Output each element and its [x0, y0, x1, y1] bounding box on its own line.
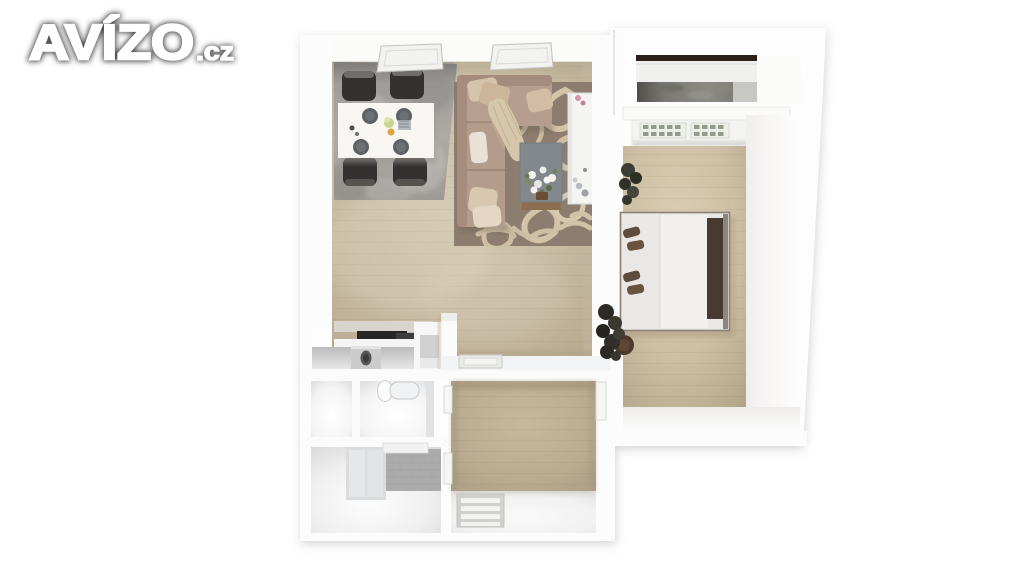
svg-text:AVÍZO: AVÍZO [29, 16, 194, 70]
svg-text:.cz: .cz [196, 38, 234, 66]
